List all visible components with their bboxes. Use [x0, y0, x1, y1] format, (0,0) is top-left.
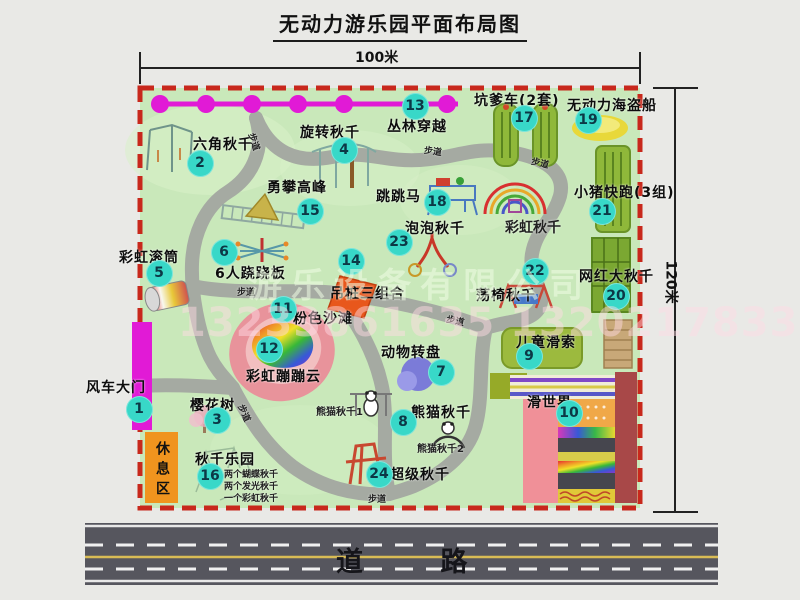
poi-badge-1: 1 — [126, 396, 153, 423]
figure-title: 无动力游乐园平面布局图 — [273, 8, 527, 42]
poi-label-24: 超级秋千 — [390, 464, 450, 484]
road-label: 道 路 — [336, 540, 501, 579]
annotation-label: 一个彩虹秋千 — [224, 491, 278, 504]
width-dimension-label: 100米 — [355, 47, 398, 67]
poi-badge-17: 17 — [511, 105, 538, 132]
poi-label-18: 跳跳马 — [376, 186, 421, 206]
poi-badge-8: 8 — [390, 409, 417, 436]
poi-badge-23: 23 — [386, 229, 413, 256]
poi-badge-19: 19 — [575, 107, 602, 134]
poi-label-23: 泡泡秋千 — [405, 218, 465, 238]
poi-badge-10: 10 — [556, 400, 583, 427]
poi-badge-5: 5 — [146, 260, 173, 287]
poi-label-12: 彩虹蹦蹦云 — [246, 366, 321, 386]
poi-label-8: 熊猫秋千 — [411, 402, 471, 422]
poi-badge-21: 21 — [589, 198, 616, 225]
path-sign: 步道 — [368, 492, 386, 505]
rest-area-label: 休息区 — [152, 441, 172, 501]
poi-badge-2: 2 — [187, 150, 214, 177]
park-layout-figure: 无动力游乐园平面布局图 100米 120米 游乐设备有限公司 132338616… — [0, 0, 800, 600]
height-dimension-label: 120米 — [662, 260, 682, 303]
poi-label-15: 勇攀高峰 — [267, 177, 327, 197]
poi-badge-9: 9 — [516, 343, 543, 370]
poi-label-1: 风车大门 — [86, 377, 146, 397]
annotation-label: 熊猫秋千1 — [316, 403, 363, 418]
annotation-label: 彩虹秋千 — [505, 217, 561, 237]
path-sign: 步道 — [423, 143, 443, 158]
poi-label-21: 小猪快跑(3组) — [574, 182, 675, 202]
poi-badge-18: 18 — [424, 189, 451, 216]
poi-badge-24: 24 — [366, 461, 393, 488]
poi-badge-4: 4 — [331, 137, 358, 164]
watermark-phone: 13233861635 13202178333 — [178, 300, 800, 346]
poi-badge-6: 6 — [211, 239, 238, 266]
annotation-label: 熊猫秋千2 — [417, 440, 464, 455]
poi-badge-13: 13 — [402, 93, 429, 120]
poi-badge-3: 3 — [204, 407, 231, 434]
poi-badge-15: 15 — [297, 198, 324, 225]
poi-badge-7: 7 — [428, 359, 455, 386]
poi-badge-16: 16 — [197, 463, 224, 490]
